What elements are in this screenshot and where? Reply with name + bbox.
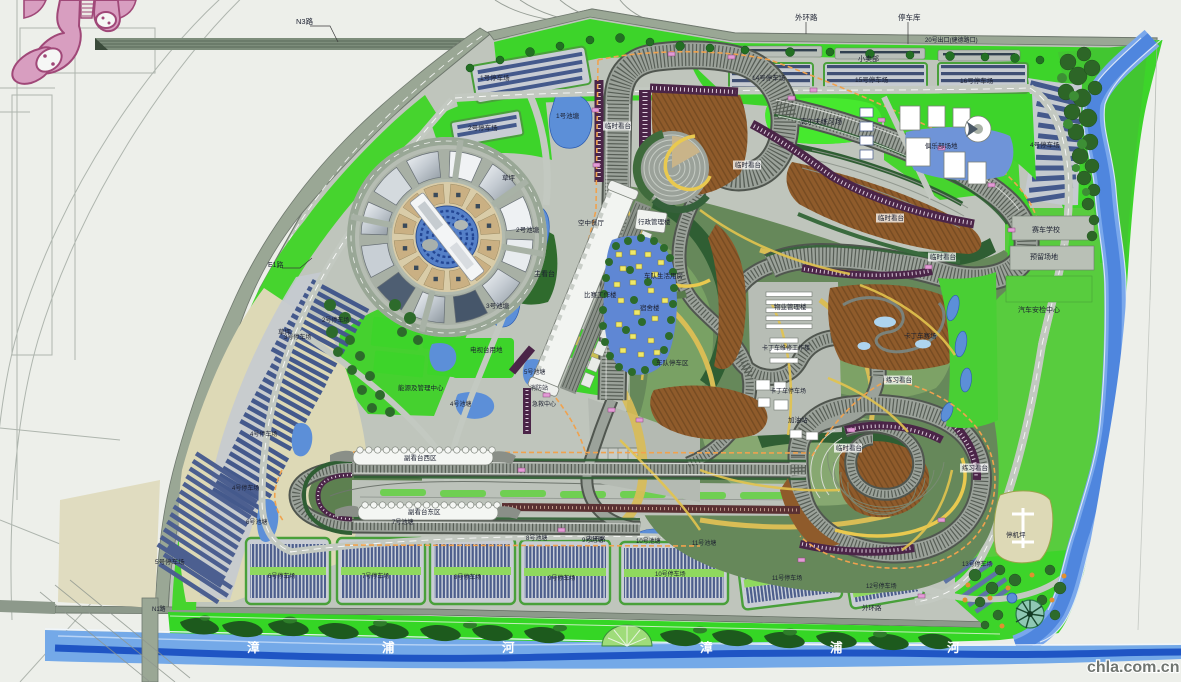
svg-text:9号停车场: 9号停车场: [548, 574, 575, 582]
svg-text:6号池塘: 6号池塘: [246, 518, 267, 526]
svg-text:物业管理楼: 物业管理楼: [774, 302, 807, 311]
svg-text:14号停车场: 14号停车场: [752, 73, 786, 82]
svg-text:4号停车场: 4号停车场: [1030, 140, 1060, 149]
svg-text:8号池塘: 8号池塘: [526, 534, 547, 542]
svg-text:加油站: 加油站: [788, 415, 808, 424]
svg-text:chla.com.cn: chla.com.cn: [1087, 659, 1179, 676]
svg-text:E1路: E1路: [268, 260, 284, 269]
svg-text:停机坪: 停机坪: [1006, 530, 1026, 539]
svg-text:副看台西区: 副看台西区: [404, 453, 437, 462]
svg-text:俱乐部场地: 俱乐部场地: [925, 141, 958, 150]
svg-text:草坪: 草坪: [278, 327, 292, 336]
svg-text:浦: 浦: [382, 640, 395, 655]
svg-text:11号池塘: 11号池塘: [692, 539, 716, 547]
svg-text:外环路: 外环路: [862, 603, 882, 612]
svg-text:7号停车场: 7号停车场: [362, 572, 389, 580]
svg-text:浦: 浦: [830, 640, 843, 655]
svg-text:7号池塘: 7号池塘: [392, 518, 413, 526]
svg-text:4号池塘: 4号池塘: [450, 400, 471, 408]
svg-text:卡丁车维修工作楼: 卡丁车维修工作楼: [762, 344, 810, 352]
svg-text:4号停车场: 4号停车场: [250, 430, 277, 438]
svg-text:2号池塘: 2号池塘: [516, 225, 540, 234]
svg-text:主看台: 主看台: [534, 269, 555, 278]
svg-text:5号池塘: 5号池塘: [524, 368, 545, 376]
svg-text:卡丁车赛场: 卡丁车赛场: [904, 331, 937, 340]
svg-text:宿舍楼: 宿舍楼: [640, 303, 660, 312]
svg-text:1号停车场: 1号停车场: [480, 73, 510, 82]
svg-text:行政管理楼: 行政管理楼: [638, 217, 671, 226]
svg-text:10号停车场: 10号停车场: [655, 570, 686, 578]
svg-text:20号出口(健德路口): 20号出口(健德路口): [925, 36, 978, 44]
svg-text:2号停车场: 2号停车场: [468, 123, 498, 132]
svg-text:练习看台: 练习看台: [962, 463, 988, 472]
svg-text:临时看台: 临时看台: [930, 252, 956, 261]
svg-text:2号停车场: 2号停车场: [322, 316, 349, 324]
svg-text:11号停车场: 11号停车场: [772, 574, 802, 582]
svg-text:临时看台: 临时看台: [605, 121, 631, 130]
svg-text:停车库: 停车库: [898, 12, 921, 22]
svg-text:16号停车场: 16号停车场: [960, 76, 994, 85]
svg-text:赛车学校: 赛车学校: [1032, 225, 1060, 234]
svg-text:卡丁车停车场: 卡丁车停车场: [770, 387, 806, 395]
svg-text:河: 河: [947, 640, 960, 655]
svg-text:6号停车场: 6号停车场: [268, 572, 295, 580]
svg-text:外环路: 外环路: [795, 12, 818, 22]
svg-text:13号停车场: 13号停车场: [962, 560, 993, 568]
svg-text:12号停车场: 12号停车场: [866, 582, 897, 590]
svg-text:15号停车场: 15号停车场: [855, 75, 889, 84]
svg-text:草坪: 草坪: [502, 173, 516, 182]
svg-text:能源及管理中心: 能源及管理中心: [398, 383, 444, 392]
svg-text:副看台东区: 副看台东区: [408, 507, 441, 516]
svg-text:预留场地: 预留场地: [1030, 252, 1058, 261]
svg-text:N1路: N1路: [152, 605, 166, 613]
svg-text:1号池塘: 1号池塘: [556, 111, 580, 120]
svg-text:10号池塘: 10号池塘: [636, 537, 661, 545]
svg-text:4号停车场: 4号停车场: [232, 484, 259, 492]
svg-text:河: 河: [502, 640, 515, 655]
svg-text:急救中心: 急救中心: [532, 400, 556, 408]
svg-text:9号池塘: 9号池塘: [582, 536, 603, 544]
svg-text:空中餐厅: 空中餐厅: [578, 218, 605, 227]
svg-text:比赛工作楼: 比赛工作楼: [584, 290, 617, 299]
svg-text:练习看台: 练习看台: [886, 375, 912, 384]
svg-text:N3路: N3路: [296, 16, 314, 26]
svg-text:3号池塘: 3号池塘: [486, 301, 510, 310]
svg-text:漳: 漳: [247, 640, 260, 655]
svg-text:临时看台: 临时看台: [878, 213, 904, 222]
svg-text:汽车安检中心: 汽车安检中心: [1018, 305, 1060, 314]
svg-text:漳: 漳: [700, 640, 713, 655]
svg-text:车队停车区: 车队停车区: [656, 358, 689, 367]
svg-text:高尔夫练习场: 高尔夫练习场: [800, 117, 842, 126]
svg-text:5号停车场: 5号停车场: [155, 557, 185, 566]
svg-text:车队生活用房: 车队生活用房: [644, 271, 683, 280]
svg-text:消防站: 消防站: [530, 384, 548, 392]
svg-text:临时看台: 临时看台: [836, 443, 862, 452]
svg-text:小卖部: 小卖部: [858, 54, 879, 63]
svg-text:8号停车场: 8号停车场: [454, 573, 481, 581]
svg-text:临时看台: 临时看台: [735, 160, 761, 169]
svg-text:电视台用地: 电视台用地: [470, 345, 503, 354]
